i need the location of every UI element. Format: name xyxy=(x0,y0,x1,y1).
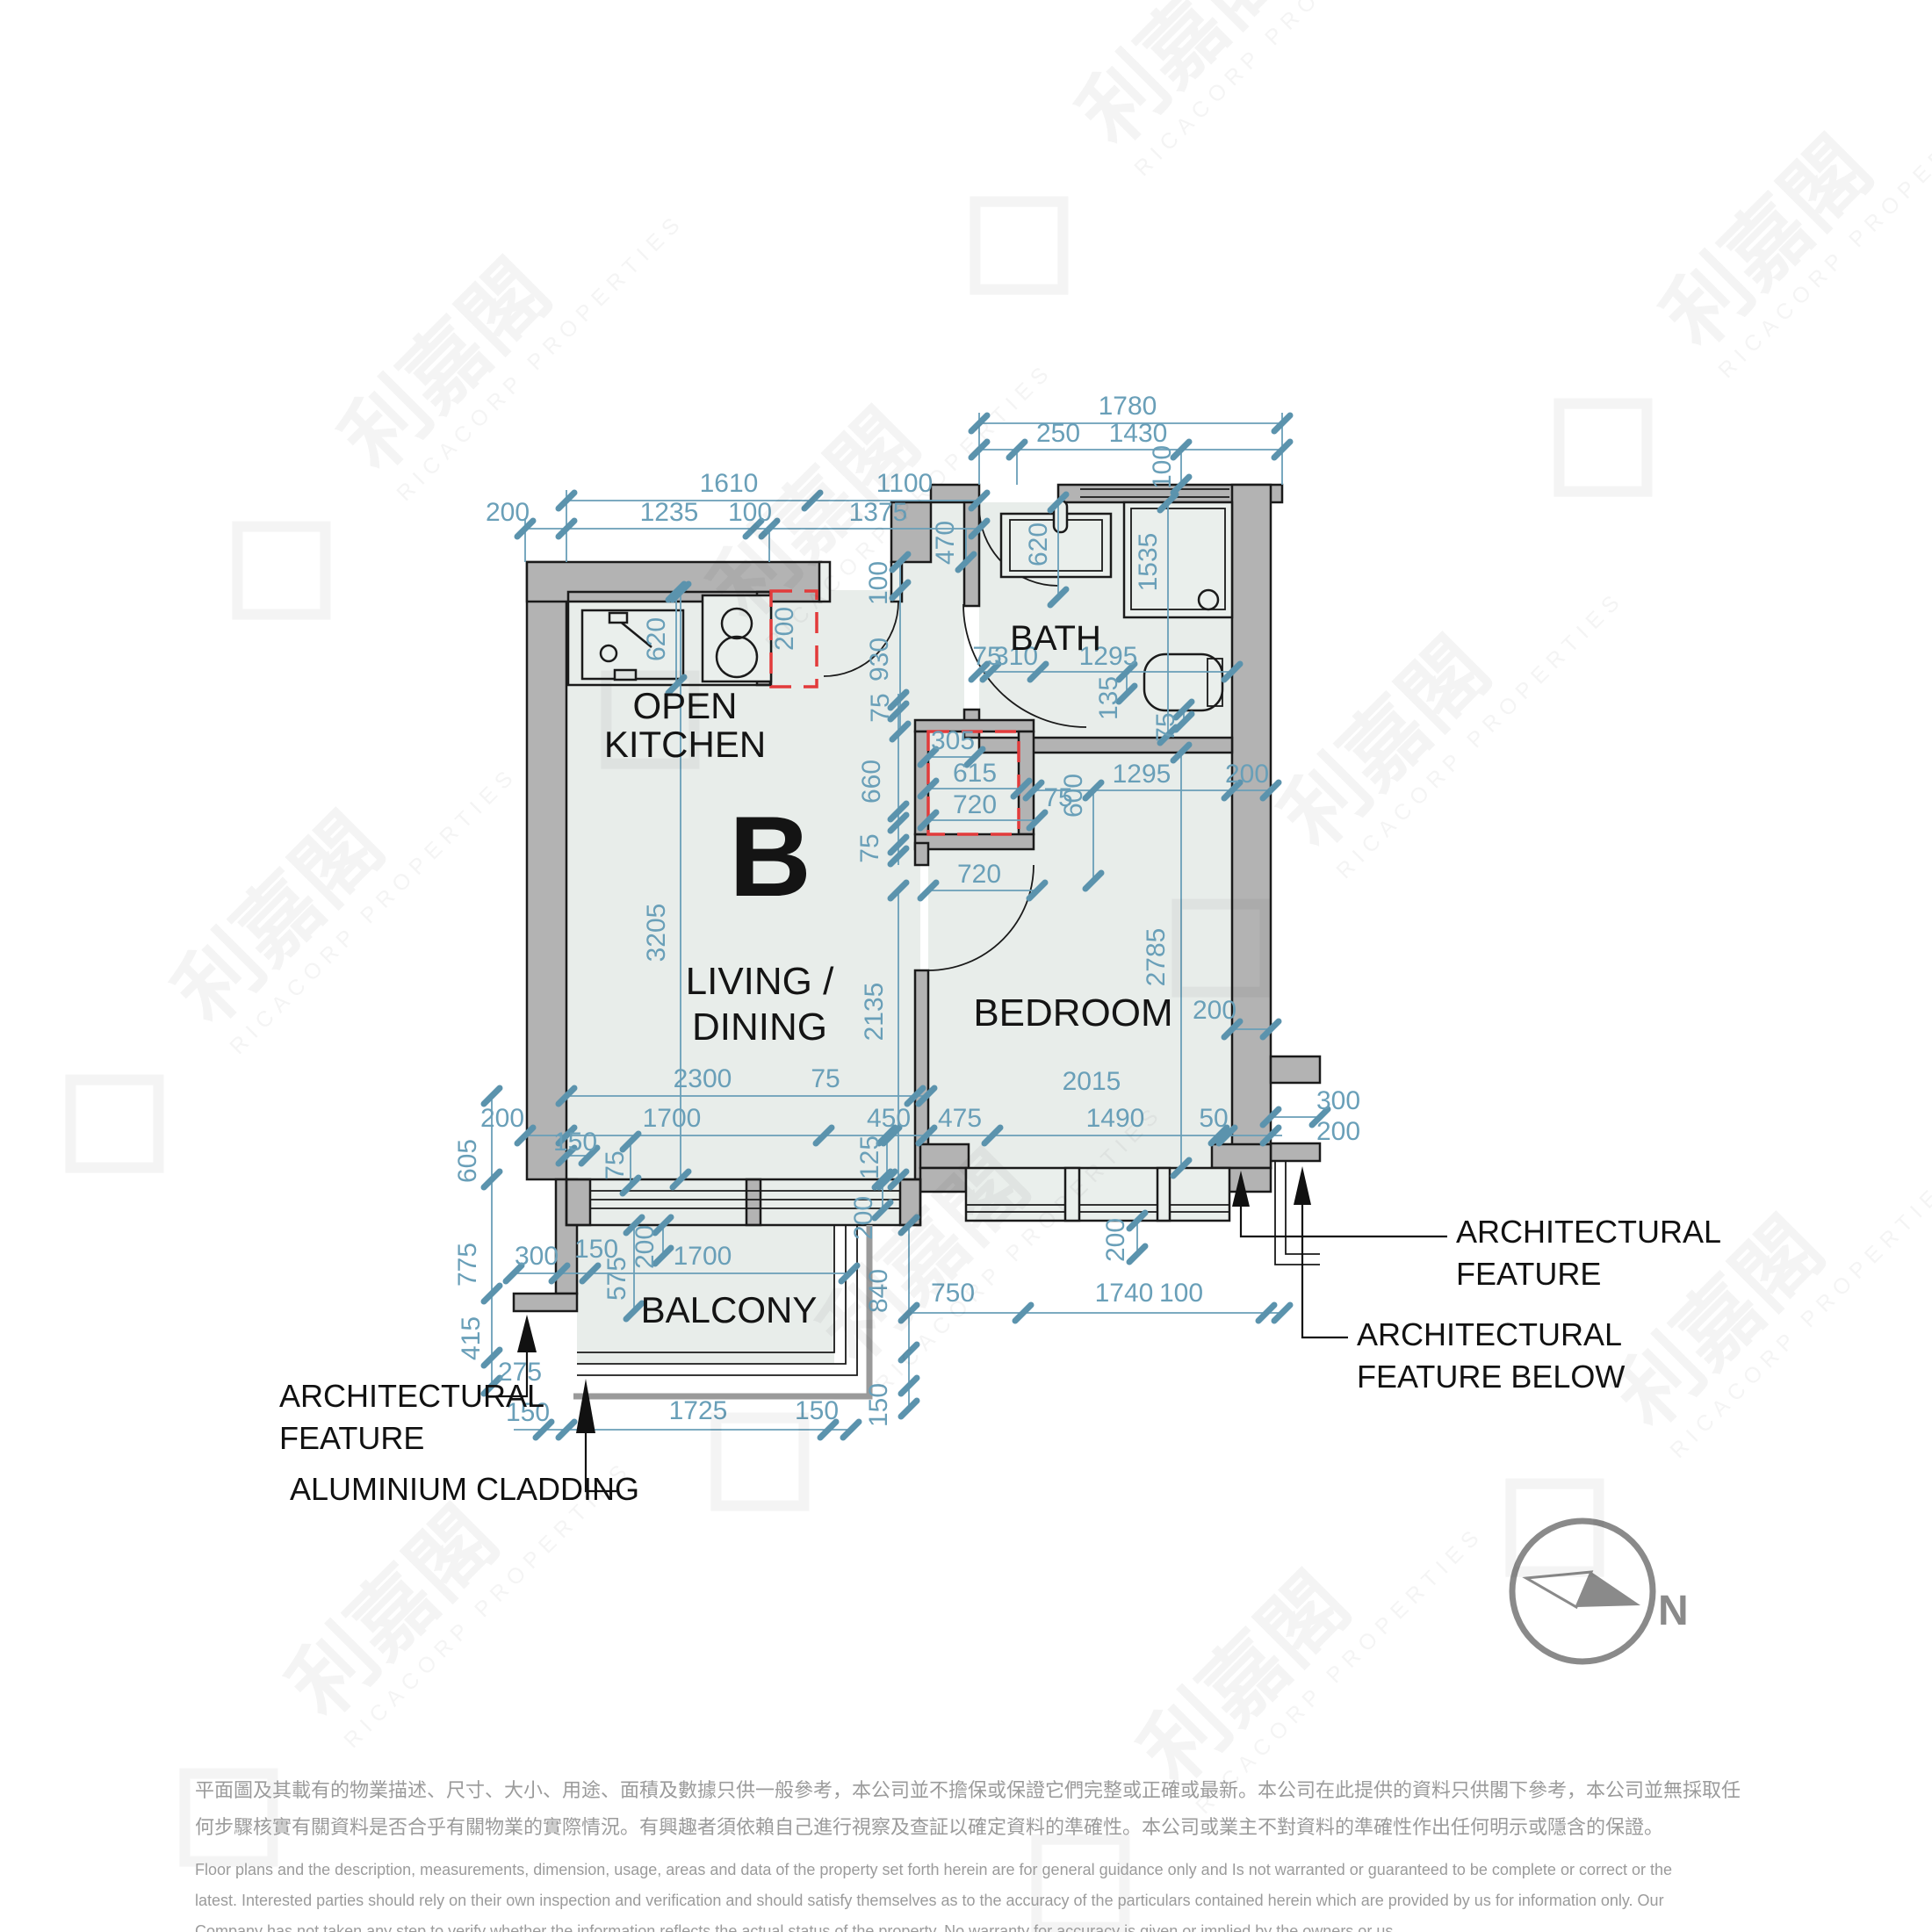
dim-label: 75 xyxy=(855,833,884,862)
dim-label: 200 xyxy=(849,1196,878,1240)
dim-label: 200 xyxy=(486,498,530,527)
disclaimer-en-line: Company has not taken any step to verify… xyxy=(195,1916,1741,1932)
feature-below-outline xyxy=(1275,1161,1320,1265)
dim-label: 2135 xyxy=(860,983,889,1042)
dim-label: 720 xyxy=(957,860,1001,889)
dim-label: 605 xyxy=(453,1139,482,1183)
dim-label: 1535 xyxy=(1134,533,1163,592)
dim-label: 415 xyxy=(457,1316,486,1360)
architectural-feature-below-label: ARCHITECTURAL xyxy=(1357,1316,1622,1352)
floorplan-svg: 1780 250 1430 100 1610 1100 200 1235 100… xyxy=(0,0,1932,1932)
floorplan-page: 1780 250 1430 100 1610 1100 200 1235 100… xyxy=(0,0,1932,1932)
dim-label: 200 xyxy=(1101,1218,1130,1262)
bedroom-label: BEDROOM xyxy=(973,991,1172,1034)
architectural-feature-below-label: FEATURE BELOW xyxy=(1357,1359,1625,1395)
dim-label: 1295 xyxy=(1113,760,1171,789)
disclaimer-en-line: Floor plans and the description, measure… xyxy=(195,1855,1741,1885)
dim-label: 2300 xyxy=(674,1064,732,1093)
unit-letter: B xyxy=(729,792,811,920)
disclaimer: 平面圖及其載有的物業描述、尺寸、大小、用途、面積及數據只供一般參考，本公司並不擔… xyxy=(195,1772,1741,1932)
dim-label: 100 xyxy=(864,561,893,605)
bath-label: BATH xyxy=(1010,619,1101,658)
dim-label: 1740 xyxy=(1095,1279,1154,1308)
dim-label: 50 xyxy=(1199,1104,1228,1133)
dim-label: 305 xyxy=(931,726,975,755)
dim-label: 575 xyxy=(602,1257,631,1301)
dim-label: 2015 xyxy=(1063,1067,1121,1096)
architectural-feature-label: FEATURE xyxy=(279,1420,424,1456)
dim-label: 450 xyxy=(867,1104,911,1133)
disclaimer-en-line: latest. Interested parties should rely o… xyxy=(195,1885,1741,1916)
dim-label: 200 xyxy=(480,1104,524,1133)
dim-label: 75 xyxy=(866,693,895,722)
dim-label: 600 xyxy=(1059,774,1088,818)
dim-label: 775 xyxy=(453,1243,482,1287)
architectural-feature-label: ARCHITECTURAL xyxy=(279,1378,544,1414)
dim-label: 930 xyxy=(865,638,894,681)
dim-label: 75 xyxy=(811,1064,840,1093)
disclaimer-zh-line: 何步驟核實有關資料是否合乎有關物業的實際情況。有興趣者須依賴自己進行視察及查証以… xyxy=(195,1809,1741,1846)
dim-label: 200 xyxy=(1193,996,1236,1025)
dim-label: 150 xyxy=(553,1128,597,1157)
dim-label: 200 xyxy=(631,1225,660,1269)
dim-label: 615 xyxy=(953,759,997,788)
dim-label: 100 xyxy=(1159,1279,1203,1308)
dim-label: 475 xyxy=(938,1104,982,1133)
dim-label: 1430 xyxy=(1109,419,1168,448)
dim-label: 470 xyxy=(931,521,960,565)
dim-label: 100 xyxy=(1148,445,1177,489)
dim-label: 620 xyxy=(642,617,671,661)
living-dining-label: LIVING / xyxy=(686,960,834,1003)
dim-label: 1780 xyxy=(1099,392,1157,421)
bath-wc xyxy=(1144,654,1222,710)
balcony-label: BALCONY xyxy=(641,1289,818,1330)
dim-label: 75 xyxy=(1151,712,1180,741)
architectural-feature-label: ARCHITECTURAL xyxy=(1456,1214,1721,1250)
dim-label: 125 xyxy=(855,1135,884,1179)
dim-label: 135 xyxy=(1094,676,1123,720)
dim-label: 1700 xyxy=(674,1242,732,1271)
dim-label: 1235 xyxy=(640,498,699,527)
disclaimer-zh-line: 平面圖及其載有的物業描述、尺寸、大小、用途、面積及數據只供一般參考，本公司並不擔… xyxy=(195,1772,1741,1809)
dim-label: 300 xyxy=(515,1242,559,1271)
dim-label: 720 xyxy=(953,790,997,819)
dim-label: 1610 xyxy=(700,469,759,498)
dim-label: 660 xyxy=(857,760,886,804)
open-kitchen-label: OPEN xyxy=(632,685,737,726)
dim-label: 3205 xyxy=(642,904,671,962)
arrow-up-icon xyxy=(1294,1166,1311,1205)
arrow-up-icon xyxy=(576,1379,595,1433)
dim-label: 200 xyxy=(1316,1117,1360,1146)
arrow-up-icon xyxy=(517,1315,537,1352)
living-dining-label: DINING xyxy=(692,1006,827,1049)
architectural-feature-label: FEATURE xyxy=(1456,1256,1601,1292)
compass-north-label: N xyxy=(1658,1588,1689,1634)
dim-label: 200 xyxy=(1225,760,1269,789)
dim-label: 250 xyxy=(1036,419,1080,448)
dim-label: 75 xyxy=(601,1150,630,1179)
dim-label: 620 xyxy=(1024,523,1053,566)
dim-label: 1700 xyxy=(643,1104,702,1133)
dim-label: 300 xyxy=(1316,1086,1360,1115)
dim-label: 2785 xyxy=(1142,928,1171,987)
